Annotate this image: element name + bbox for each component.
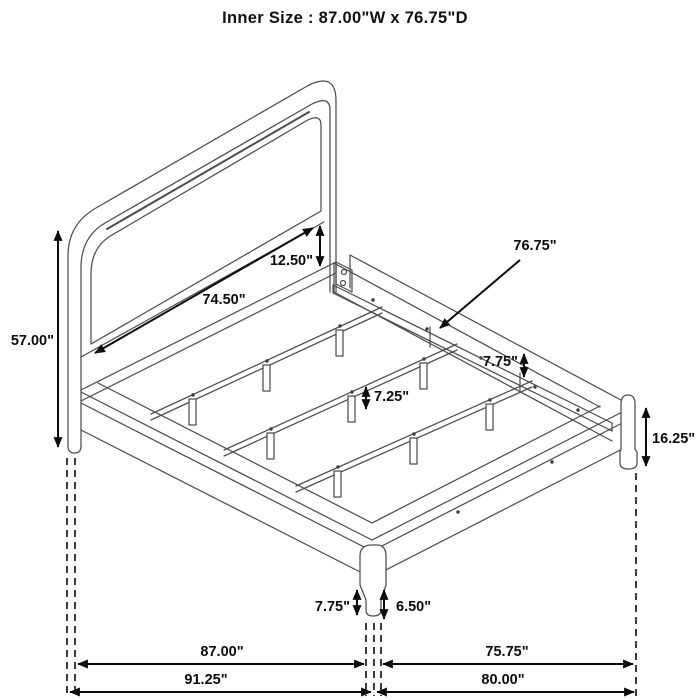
slat-leg — [348, 396, 355, 422]
dim-overall-height: 57.00" — [11, 231, 58, 447]
dim-label: 16.25" — [652, 431, 695, 447]
head-rail — [81, 262, 336, 401]
front-leg — [360, 545, 386, 616]
slat-leg — [189, 399, 196, 425]
dim-rail-length: 76.75" — [440, 238, 557, 328]
dim-depth-outer: 80.00" — [377, 672, 634, 692]
dim-label: 75.75" — [485, 644, 528, 660]
dim-label: 87.00" — [200, 644, 243, 660]
dim-front-leg-height: 7.75" — [315, 590, 357, 615]
slat — [224, 344, 457, 456]
slat-leg — [263, 365, 270, 391]
slat-leg — [267, 433, 274, 459]
slat-support-rail — [333, 285, 612, 431]
slat — [296, 381, 532, 492]
slat-leg — [336, 330, 343, 356]
dim-label: 7.75" — [315, 599, 350, 615]
slat — [151, 307, 382, 420]
slat-leg — [410, 438, 417, 464]
dim-label: 7.25" — [374, 389, 409, 405]
dim-label: 91.25" — [184, 672, 227, 688]
right-side-rail — [334, 255, 634, 441]
dim-footboard-height: 16.25" — [646, 408, 695, 466]
dim-label: 76.75" — [513, 238, 556, 254]
slat-leg — [334, 471, 341, 497]
dim-label: 7.75" — [483, 354, 518, 370]
dim-label: 6.50" — [396, 599, 431, 615]
dim-width-inner: 87.00" — [78, 644, 364, 664]
dim-label: 74.50" — [202, 292, 245, 308]
dim-rail-drop: 7.75" — [483, 354, 524, 377]
slats-and-legs — [151, 307, 532, 497]
left-side-rail — [81, 383, 372, 578]
dim-label: 12.50" — [270, 253, 313, 269]
dim-label: 57.00" — [11, 333, 54, 349]
dim-front-leg-lower: 6.50" — [384, 590, 431, 619]
floor-guide-lines — [67, 458, 636, 696]
slat-leg — [420, 363, 427, 389]
dim-depth-inner: 75.75" — [383, 644, 633, 664]
footboard-corner-leg — [620, 395, 637, 469]
bed-frame-dimension-drawing: 57.00" 74.50" 12.50" 76.75" 7.75" 7.25" … — [0, 0, 700, 700]
slat-leg — [486, 404, 493, 430]
dim-label: 80.00" — [481, 672, 524, 688]
dim-width-outer: 91.25" — [70, 672, 371, 692]
dimension-diagram-page: Inner Size : 87.00"W x 76.75"D — [0, 0, 700, 700]
dim-support-leg-height: 7.25" — [366, 387, 409, 409]
